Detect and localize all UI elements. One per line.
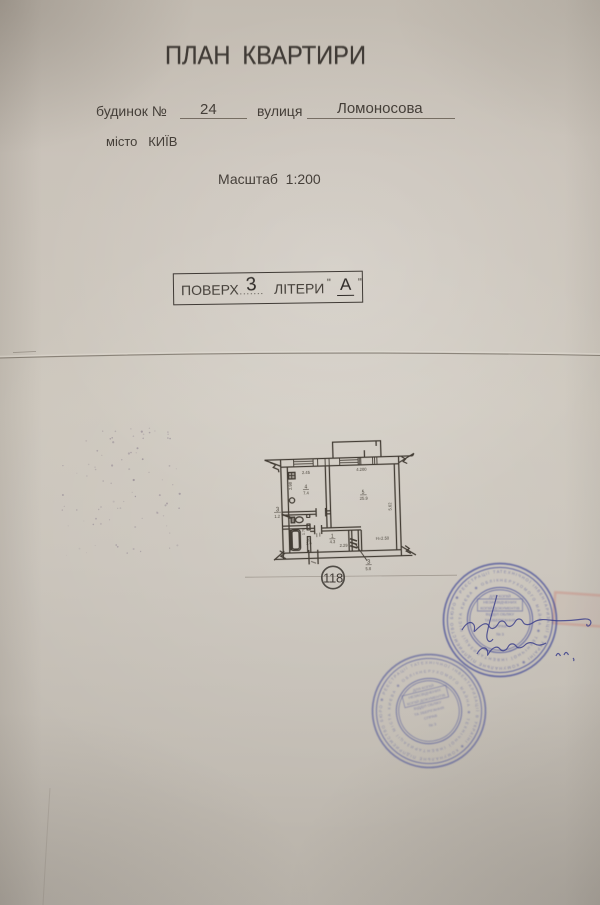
svg-text:7.4: 7.4 xyxy=(303,490,310,495)
svg-text:H=2.50: H=2.50 xyxy=(376,536,390,541)
svg-text:2.45: 2.45 xyxy=(302,470,311,475)
svg-text:4.3: 4.3 xyxy=(330,539,337,544)
svg-text:2.29: 2.29 xyxy=(340,543,349,548)
svg-text:118: 118 xyxy=(323,571,343,586)
svg-text:КОПІЙ ДОКУМЕНТІВ: КОПІЙ ДОКУМЕНТІВ xyxy=(480,606,520,611)
svg-text:ВІДДІЛ ОБЛІКУ: ВІДДІЛ ОБЛІКУ xyxy=(486,612,515,617)
svg-text:5.8: 5.8 xyxy=(365,566,372,571)
svg-text:25.9: 25.9 xyxy=(360,496,369,501)
svg-text:2.98: 2.98 xyxy=(288,481,293,490)
svg-text:5.62: 5.62 xyxy=(387,502,392,511)
svg-text:НЕЗАСВІДЧЕНИХ: НЕЗАСВІДЧЕНИХ xyxy=(483,600,517,605)
svg-text:№ 3: № 3 xyxy=(496,632,504,637)
svg-text:ДЛЯ КОПІЙ: ДЛЯ КОПІЙ xyxy=(489,594,511,599)
svg-text:4.280: 4.280 xyxy=(356,467,367,472)
svg-text:№ 3: № 3 xyxy=(428,721,437,728)
svg-text:1.2: 1.2 xyxy=(274,514,281,519)
svg-text:1.70: 1.70 xyxy=(302,528,306,535)
